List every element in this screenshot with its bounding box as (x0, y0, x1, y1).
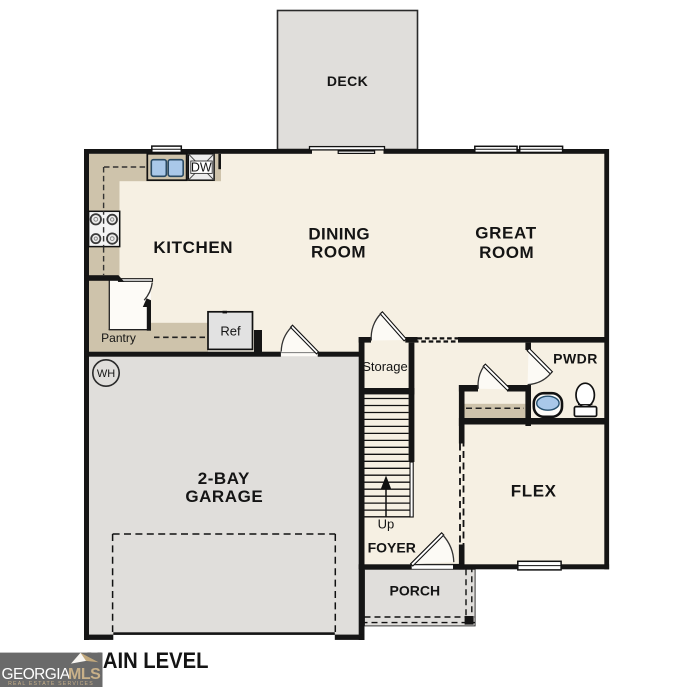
svg-text:PWDR: PWDR (553, 351, 598, 367)
svg-text:FOYER: FOYER (368, 540, 416, 556)
svg-text:PORCH: PORCH (390, 583, 441, 599)
svg-text:Pantry: Pantry (101, 331, 136, 345)
svg-text:FLEX: FLEX (511, 481, 557, 500)
svg-text:Storage: Storage (362, 359, 408, 374)
svg-text:2-BAY: 2-BAY (198, 469, 250, 488)
svg-text:GREAT: GREAT (475, 224, 537, 243)
svg-text:ROOM: ROOM (311, 243, 366, 262)
svg-text:WH: WH (97, 368, 115, 380)
svg-text:ROOM: ROOM (479, 243, 534, 262)
svg-text:MAIN LEVEL: MAIN LEVEL (86, 649, 209, 673)
svg-text:DW: DW (191, 161, 212, 175)
svg-text:GARAGE: GARAGE (185, 487, 263, 506)
svg-text:Up: Up (378, 517, 395, 532)
svg-text:DINING: DINING (308, 225, 370, 244)
svg-text:REAL ESTATE SERVICES: REAL ESTATE SERVICES (8, 681, 94, 687)
svg-text:Ref: Ref (220, 324, 241, 339)
svg-text:DECK: DECK (327, 73, 368, 89)
svg-text:KITCHEN: KITCHEN (153, 238, 233, 257)
